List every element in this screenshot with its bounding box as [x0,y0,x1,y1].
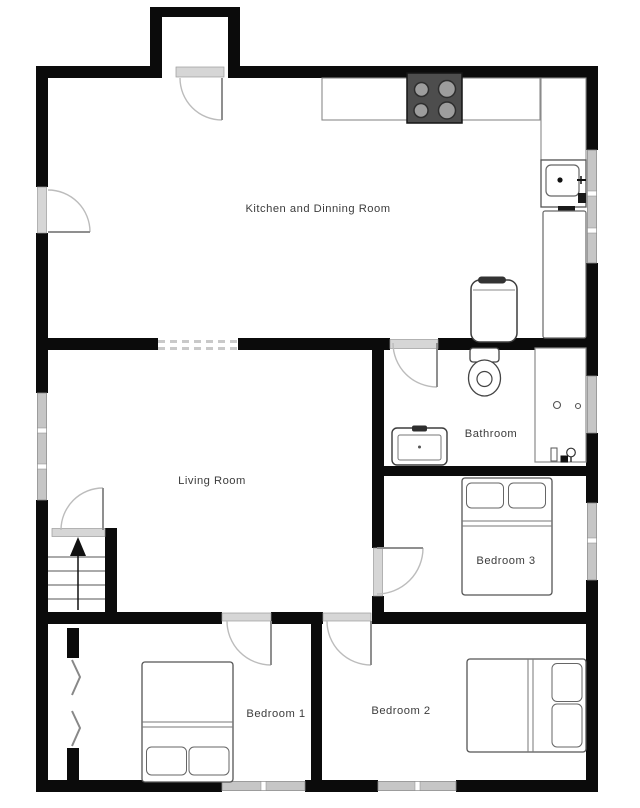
floor-plan-canvas: Kitchen and Dinning Room Living Room Bat… [0,0,640,808]
wall-left-middle [36,233,48,393]
kitchen-label: Kitchen and Dinning Room [245,203,390,215]
wall-kitchen-living-left [48,338,158,350]
window-right-kitchen [588,150,597,263]
open-passage-kitchen-living [158,342,238,349]
entry-door-threshold [176,67,224,77]
burner-icon [439,81,456,98]
entry-porch-wall-right [228,7,240,78]
bedroom2-label: Bedroom 2 [371,705,430,717]
bedroom1-label: Bedroom 1 [246,708,305,720]
pillow-icon [189,747,229,775]
bedroom2-door-threshold [323,613,371,621]
wall-right-2 [586,263,598,376]
wall-closet-lower [67,748,79,780]
kitchen-side-door-threshold [38,187,47,233]
window-right-bathroom [588,376,597,433]
washing-machine-control [412,426,427,432]
bedroom3-label: Bedroom 3 [476,555,535,567]
kitchen-side-door-swing-arc [48,190,90,232]
bathroom-fixtures [392,348,586,465]
staircase-door-swing-arc [61,488,103,530]
wall-left-upper [36,66,48,187]
water-heater-icon [471,280,517,342]
wall-top-left [36,66,150,78]
wall-living-bathroom-vertical [372,350,384,548]
water-heater-lid [478,277,506,284]
window-divider [588,191,597,196]
bedroom2-door-swing-arc [327,621,371,665]
counter-item [578,193,586,203]
wall-hall-bedroom1 [48,612,222,624]
window-left-living [38,393,47,500]
pillow-icon [552,664,582,702]
window-divider [415,782,420,791]
bed-bedroom1 [142,662,233,782]
living-room-label: Living Room [178,475,246,487]
wall-living-bedroom3-corner [372,596,384,624]
pillow-icon [467,483,504,508]
wall-right-4 [586,580,598,792]
bathroom-door-threshold [390,340,438,349]
burner-icon [414,104,428,118]
window-divider [588,228,597,233]
window-divider [588,538,597,543]
washing-machine-dot [418,446,421,449]
bifold-door-icon [72,711,80,746]
pillow-icon [147,747,187,775]
wall-staircase-right [105,528,117,612]
wall-bottom-middle [305,780,378,792]
wall-bottom-right [456,780,598,792]
staircase-door-threshold [52,529,105,537]
bedroom1-door-swing-arc [227,621,271,665]
bedroom1-door-threshold [222,613,271,621]
cabinet-divider [558,206,575,211]
wall-hall-between-doors [271,612,323,624]
bedroom3-door-threshold [374,548,383,596]
wall-left-lower [36,500,48,792]
wall-bedroom1-bedroom2 [311,624,322,780]
stairs-up-arrow-icon [70,537,86,556]
tall-cabinet-icon [543,211,586,338]
toilet-bowl [477,372,492,387]
bedroom3-door-swing-arc [377,548,423,594]
wall-right-3 [586,433,598,503]
bifold-door-icon [72,660,80,695]
closet-bifold-doors [72,660,80,746]
burner-icon [439,102,456,119]
wall-closet-upper [67,628,79,658]
window-divider [38,428,47,433]
floor-plan: Kitchen and Dinning Room Living Room Bat… [0,0,640,808]
bath-fitting [561,456,569,463]
bath-faucet-icon [551,448,557,461]
pillow-icon [552,704,582,747]
kitchen-counter-right [541,78,586,160]
wall-bathroom-bedroom3 [384,466,586,476]
wall-kitchen-living-right [238,338,390,350]
window-divider [261,782,266,791]
wall-right-1 [586,66,598,150]
window-divider [38,464,47,469]
wall-bedroom3-bottom [384,612,598,624]
bed-bedroom2 [467,659,586,752]
staircase [48,537,105,610]
burner-icon [415,83,429,97]
bathroom-label: Bathroom [465,428,518,440]
shower-head-icon [567,448,576,457]
sink-drain [557,177,562,182]
bathroom-door-swing-arc [393,343,437,387]
entry-porch-wall-top [150,7,240,17]
bed-bedroom3 [462,478,552,595]
entry-porch-wall-left [150,7,162,78]
entry-door-swing-arc [180,78,222,120]
pillow-icon [509,483,546,508]
